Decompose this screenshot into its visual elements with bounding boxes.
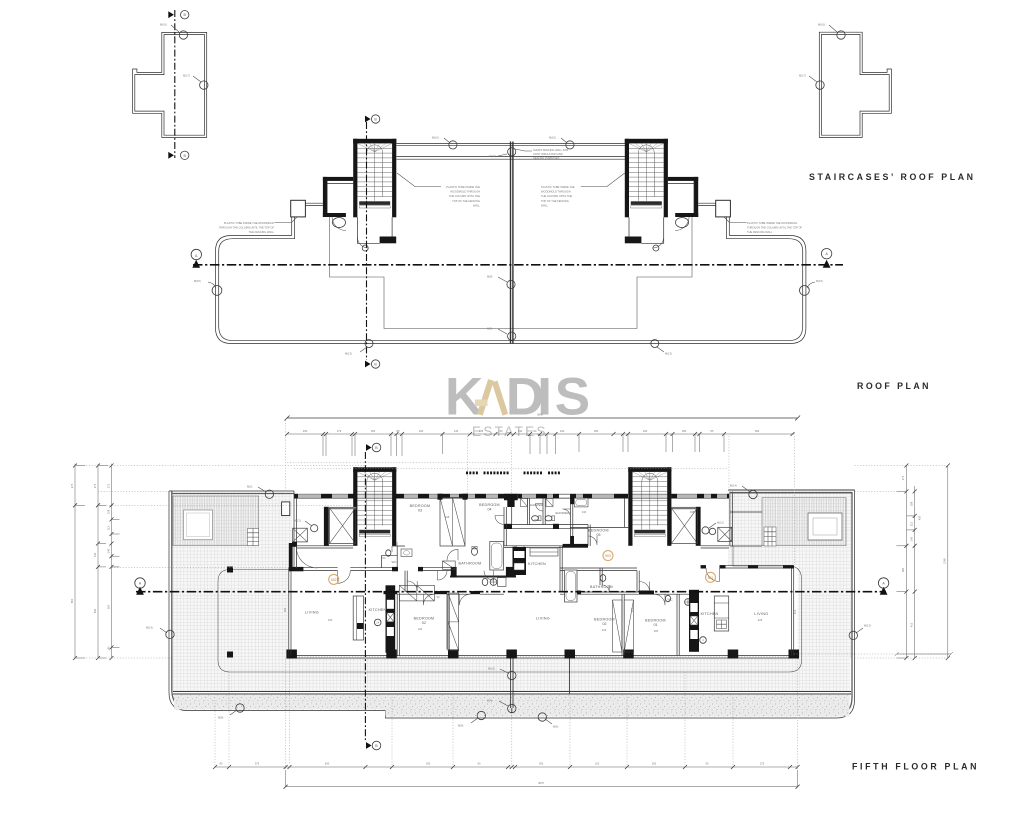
svg-text:375: 375 — [255, 762, 260, 766]
svg-text:M(17): M(17) — [799, 74, 806, 78]
svg-text:425: 425 — [758, 618, 763, 622]
svg-text:BEDROOM: BEDROOM — [414, 617, 435, 621]
svg-text:TOP OF THE FENCING: TOP OF THE FENCING — [541, 199, 569, 203]
svg-text:M(9): M(9) — [487, 327, 492, 331]
svg-text:PLASTIC TUBE INSIDE THE WOODMO: PLASTIC TUBE INSIDE THE WOODMOLD — [747, 221, 797, 225]
svg-text:205: 205 — [479, 429, 484, 433]
svg-text:158: 158 — [107, 509, 111, 514]
svg-text:M(15): M(15) — [816, 279, 823, 283]
svg-text:140: 140 — [909, 536, 913, 541]
svg-text:113: 113 — [107, 525, 111, 530]
svg-text:BATHROOM: BATHROOM — [459, 562, 482, 566]
svg-text:M(15): M(15) — [194, 279, 201, 283]
svg-text:M(14): M(14) — [730, 484, 737, 488]
svg-text:180: 180 — [594, 429, 599, 433]
svg-text:260: 260 — [395, 541, 399, 546]
svg-text:JOINT INSULATION AND: JOINT INSULATION AND — [533, 152, 563, 156]
svg-text:415: 415 — [793, 609, 797, 614]
svg-text:188: 188 — [909, 501, 913, 506]
svg-text:KITCHEN: KITCHEN — [528, 562, 546, 566]
svg-text:M(6): M(6) — [553, 725, 558, 729]
svg-text:THROUGH THE COLUMN UNTIL THE T: THROUGH THE COLUMN UNTIL THE TOP OF — [219, 226, 275, 230]
svg-text:TOP OF THE FENCING: TOP OF THE FENCING — [452, 199, 480, 203]
svg-text:180: 180 — [682, 429, 687, 433]
svg-text:300: 300 — [534, 518, 539, 522]
svg-text:380: 380 — [283, 607, 287, 612]
svg-text:M(17): M(17) — [183, 74, 190, 78]
svg-text:250: 250 — [371, 429, 376, 433]
svg-text:640: 640 — [93, 608, 97, 613]
svg-text:KITCHEN: KITCHEN — [701, 612, 719, 616]
svg-text:M(10): M(10) — [549, 136, 556, 140]
svg-text:ROOF PLAN: ROOF PLAN — [857, 381, 932, 391]
svg-text:THROUGH THE COLUMN UNTIL THE T: THROUGH THE COLUMN UNTIL THE TOP OF — [747, 226, 803, 230]
svg-text:240: 240 — [560, 429, 565, 433]
svg-text:275: 275 — [107, 483, 111, 488]
svg-text:M(13): M(13) — [146, 626, 153, 630]
svg-text:PLASTIC TUBE INSIDE THE: PLASTIC TUBE INSIDE THE — [541, 185, 575, 189]
svg-text:1340: 1340 — [942, 558, 946, 564]
svg-text:KITCHEN: KITCHEN — [369, 608, 387, 612]
svg-text:600: 600 — [325, 762, 330, 766]
svg-text:PLASTIC TUBE INSIDE THE WOODMO: PLASTIC TUBE INSIDE THE WOODMOLD — [224, 221, 274, 225]
svg-text:275: 275 — [901, 475, 905, 480]
svg-text:01: 01 — [654, 623, 658, 627]
svg-text:WALL: WALL — [541, 203, 549, 207]
svg-text:503: 503 — [605, 554, 611, 558]
svg-text:M(2): M(2) — [247, 485, 252, 489]
svg-text:02: 02 — [422, 621, 426, 625]
svg-text:550: 550 — [107, 604, 111, 609]
svg-text:BATHROOM: BATHROOM — [590, 585, 613, 589]
svg-text:M(8): M(8) — [487, 275, 492, 279]
svg-text:FIFTH FLOOR PLAN: FIFTH FLOOR PLAN — [852, 762, 980, 772]
svg-text:WC: WC — [668, 598, 674, 602]
svg-text:430: 430 — [328, 618, 333, 622]
svg-text:275: 275 — [93, 483, 97, 488]
svg-text:660: 660 — [755, 429, 760, 433]
svg-text:502: 502 — [331, 578, 337, 582]
svg-text:M(16): M(16) — [160, 23, 167, 27]
svg-text:3640: 3640 — [537, 413, 543, 417]
svg-text:05: 05 — [597, 533, 601, 537]
svg-text:140: 140 — [518, 429, 523, 433]
svg-text:140: 140 — [454, 429, 459, 433]
svg-text:BEDROOM: BEDROOM — [479, 503, 500, 507]
svg-text:240: 240 — [582, 510, 587, 514]
svg-text:300: 300 — [630, 607, 634, 612]
svg-text:305: 305 — [539, 762, 544, 766]
svg-text:BEDROOM: BEDROOM — [588, 529, 609, 533]
svg-text:WOODMOLD THROUGH: WOODMOLD THROUGH — [450, 190, 480, 194]
svg-text:140: 140 — [93, 552, 97, 557]
svg-text:240: 240 — [418, 627, 423, 631]
svg-text:190: 190 — [426, 762, 431, 766]
svg-text:275: 275 — [760, 762, 765, 766]
svg-text:348: 348 — [690, 510, 695, 514]
svg-text:THE COLUMN UNTIL THE: THE COLUMN UNTIL THE — [541, 194, 572, 198]
svg-text:WOODMOLD THROUGH: WOODMOLD THROUGH — [541, 190, 571, 194]
svg-text:02: 02 — [603, 622, 607, 626]
svg-text:LIVING: LIVING — [754, 612, 768, 616]
svg-text:113: 113 — [909, 521, 913, 526]
svg-text:M(16): M(16) — [818, 23, 825, 27]
svg-text:BEDROOM: BEDROOM — [410, 504, 431, 508]
svg-text:SHORT FENCING WALL FOR: SHORT FENCING WALL FOR — [533, 148, 568, 152]
svg-text:LIVING: LIVING — [536, 617, 550, 621]
svg-text:230: 230 — [419, 429, 424, 433]
svg-text:WC: WC — [392, 560, 398, 564]
svg-text:THE COLUMN UNTIL THE: THE COLUMN UNTIL THE — [449, 194, 480, 198]
svg-text:250: 250 — [652, 762, 657, 766]
svg-text:415: 415 — [909, 622, 913, 627]
svg-text:501: 501 — [708, 576, 714, 580]
svg-text:ESTATES: ESTATES — [472, 424, 550, 439]
svg-text:LIVING: LIVING — [305, 611, 319, 615]
svg-text:M(10): M(10) — [432, 136, 439, 140]
svg-text:300: 300 — [654, 629, 659, 633]
svg-text:BEDROOM: BEDROOM — [645, 619, 666, 623]
svg-text:M(13): M(13) — [665, 352, 672, 356]
svg-text:SEALING PURPOSES: SEALING PURPOSES — [533, 156, 560, 160]
svg-text:M(10): M(10) — [488, 667, 495, 671]
svg-text:WALL: WALL — [473, 203, 481, 207]
svg-text:800: 800 — [70, 598, 74, 603]
svg-text:THE FENCING WALL: THE FENCING WALL — [249, 230, 275, 234]
svg-text:SHOWER: SHOWER — [555, 511, 569, 515]
svg-text:348: 348 — [445, 515, 450, 519]
svg-text:M(4): M(4) — [487, 699, 492, 703]
svg-text:120: 120 — [595, 762, 600, 766]
svg-text:04: 04 — [488, 508, 492, 512]
svg-text:179: 179 — [337, 429, 342, 433]
svg-text:380: 380 — [901, 567, 905, 572]
svg-text:M(12): M(12) — [294, 519, 301, 523]
svg-text:433: 433 — [602, 628, 607, 632]
svg-text:03: 03 — [418, 509, 422, 513]
svg-text:230: 230 — [643, 429, 648, 433]
svg-text:M(11): M(11) — [489, 154, 496, 158]
svg-text:275: 275 — [70, 483, 74, 488]
svg-text:M(8): M(8) — [218, 716, 223, 720]
svg-text:PLASTIC TUBE INSIDE THE: PLASTIC TUBE INSIDE THE — [446, 185, 480, 189]
svg-text:M(12): M(12) — [717, 521, 724, 525]
svg-text:M(13): M(13) — [345, 352, 352, 356]
svg-text:230: 230 — [303, 429, 308, 433]
svg-text:SHOWER: SHOWER — [529, 503, 543, 507]
svg-text:STAIRCASES’ ROOF PLAN: STAIRCASES’ ROOF PLAN — [809, 172, 976, 182]
svg-text:140: 140 — [107, 548, 111, 553]
svg-text:M(13): M(13) — [864, 624, 871, 628]
svg-text:THE FENCING WALL: THE FENCING WALL — [747, 230, 773, 234]
svg-text:BEDROOM: BEDROOM — [594, 618, 615, 622]
svg-text:3670: 3670 — [538, 781, 544, 785]
svg-text:M(9): M(9) — [458, 724, 463, 728]
svg-text:430: 430 — [918, 515, 922, 520]
